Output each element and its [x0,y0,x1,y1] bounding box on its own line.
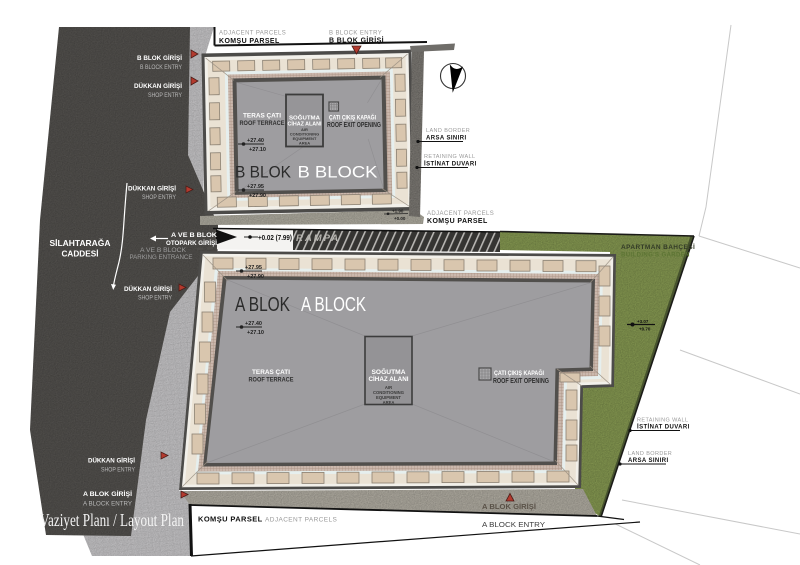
svg-text:A VE B BLOK: A VE B BLOK [171,232,217,239]
svg-text:+0.02 (7.99): +0.02 (7.99) [258,233,292,242]
svg-text:+0.70: +0.70 [639,327,651,332]
svg-text:+3.07: +3.07 [637,319,649,324]
svg-text:ADJACENT PARCELS: ADJACENT PARCELS [427,211,494,217]
svg-text:APARTMAN BAHÇESİ: APARTMAN BAHÇESİ [621,243,695,251]
svg-text:İSTİNAT DUVARI: İSTİNAT DUVARI [637,424,690,431]
svg-text:B BLOCK ENTRY: B BLOCK ENTRY [140,65,182,71]
svg-text:ARSA SINIRI: ARSA SINIRI [628,458,669,464]
svg-text:DÜKKAN GİRİŞİ: DÜKKAN GİRİŞİ [124,284,172,293]
svg-text:İSTİNAT DUVARI: İSTİNAT DUVARI [424,161,477,168]
svg-text:BUILDING'S GARDEN: BUILDING'S GARDEN [621,253,690,259]
svg-text:CADDESİ: CADDESİ [62,249,99,259]
svg-text:CİHAZ ALANI: CİHAZ ALANI [369,376,409,383]
svg-text:AREA: AREA [383,400,395,405]
svg-text:ADJACENT PARCELS: ADJACENT PARCELS [265,517,338,524]
svg-text:+1.90: +1.90 [392,209,404,214]
svg-text:A BLOCK ENTRY: A BLOCK ENTRY [83,502,132,508]
svg-text:+27.90: +27.90 [249,193,266,199]
svg-text:+27.40: +27.40 [247,138,264,144]
svg-text:B BLOCK: B BLOCK [298,163,379,182]
svg-text:SOĞUTMA: SOĞUTMA [372,368,407,376]
svg-text:+27.10: +27.10 [247,330,264,336]
svg-text:B BLOK: B BLOK [235,163,292,182]
svg-text:+0.00: +0.00 [394,216,406,221]
svg-text:SİLAHTARAĞA: SİLAHTARAĞA [50,237,111,248]
svg-text:ÇATI ÇIKIŞ KAPAĞI: ÇATI ÇIKIŞ KAPAĞI [329,114,376,122]
svg-text:KOMŞU PARSEL: KOMŞU PARSEL [198,515,263,524]
svg-text:PARKING ENTRANCE: PARKING ENTRANCE [130,255,193,261]
svg-text:LAND BORDER: LAND BORDER [628,451,672,457]
svg-text:ARSA SINIRI: ARSA SINIRI [426,136,467,142]
svg-text:SHOP ENTRY: SHOP ENTRY [142,195,176,201]
svg-text:ROOF TERRACE: ROOF TERRACE [240,121,285,127]
svg-text:A VE B BLOCK: A VE B BLOCK [140,248,186,254]
svg-text:B BLOK GİRİŞİ: B BLOK GİRİŞİ [329,37,384,45]
svg-text:ÇATI ÇIKIŞ KAPAĞI: ÇATI ÇIKIŞ KAPAĞI [494,369,544,377]
svg-text:TERAS ÇATI: TERAS ÇATI [243,114,281,120]
svg-text:SHOP ENTRY: SHOP ENTRY [138,296,172,302]
svg-text:ROOF EXIT OPENING: ROOF EXIT OPENING [493,378,549,385]
svg-text:ROOF EXIT OPENING: ROOF EXIT OPENING [327,122,381,129]
svg-text:SOĞUTMA: SOĞUTMA [289,114,320,122]
svg-text:+27.95: +27.95 [247,184,264,190]
svg-text:RAMPA: RAMPA [296,233,340,244]
svg-text:Vaziyet Planı / Layout Plan: Vaziyet Planı / Layout Plan [40,510,184,530]
svg-text:+27.95: +27.95 [245,265,262,271]
svg-text:ROOF TERRACE: ROOF TERRACE [249,378,294,384]
svg-text:KOMŞU PARSEL: KOMŞU PARSEL [427,218,488,225]
svg-text:KOMŞU PARSEL: KOMŞU PARSEL [219,38,280,45]
svg-text:RETAINING WALL: RETAINING WALL [424,154,475,160]
svg-text:TERAS ÇATI: TERAS ÇATI [252,370,290,376]
svg-text:ADJACENT PARCELS: ADJACENT PARCELS [219,31,286,37]
svg-text:SHOP ENTRY: SHOP ENTRY [148,93,182,99]
svg-text:A BLOK: A BLOK [235,293,290,316]
svg-text:SHOP ENTRY: SHOP ENTRY [101,468,135,474]
svg-text:RETAINING WALL: RETAINING WALL [637,418,688,424]
svg-text:DÜKKAN GİRİŞİ: DÜKKAN GİRİŞİ [134,81,182,90]
svg-text:OTOPARK GİRİŞİ: OTOPARK GİRİŞİ [166,239,217,247]
svg-text:LAND BORDER: LAND BORDER [426,128,470,134]
svg-text:B BLOK GİRİŞİ: B BLOK GİRİŞİ [137,54,182,62]
svg-text:DÜKKAN GİRİŞİ: DÜKKAN GİRİŞİ [88,456,135,465]
svg-text:+27.90: +27.90 [247,274,264,280]
svg-text:A BLOCK: A BLOCK [301,293,366,316]
svg-text:A BLOK GİRİŞİ: A BLOK GİRİŞİ [83,490,132,498]
svg-text:A BLOK GİRİŞİ: A BLOK GİRİŞİ [482,503,536,511]
svg-text:B BLOCK ENTRY: B BLOCK ENTRY [329,31,382,37]
svg-text:A BLOCK ENTRY: A BLOCK ENTRY [482,520,545,529]
svg-text:AREA: AREA [299,141,310,146]
svg-text:+27.40: +27.40 [245,321,262,327]
svg-text:DÜKKAN GİRİŞİ: DÜKKAN GİRİŞİ [128,184,176,193]
svg-text:+27.10: +27.10 [249,147,266,153]
